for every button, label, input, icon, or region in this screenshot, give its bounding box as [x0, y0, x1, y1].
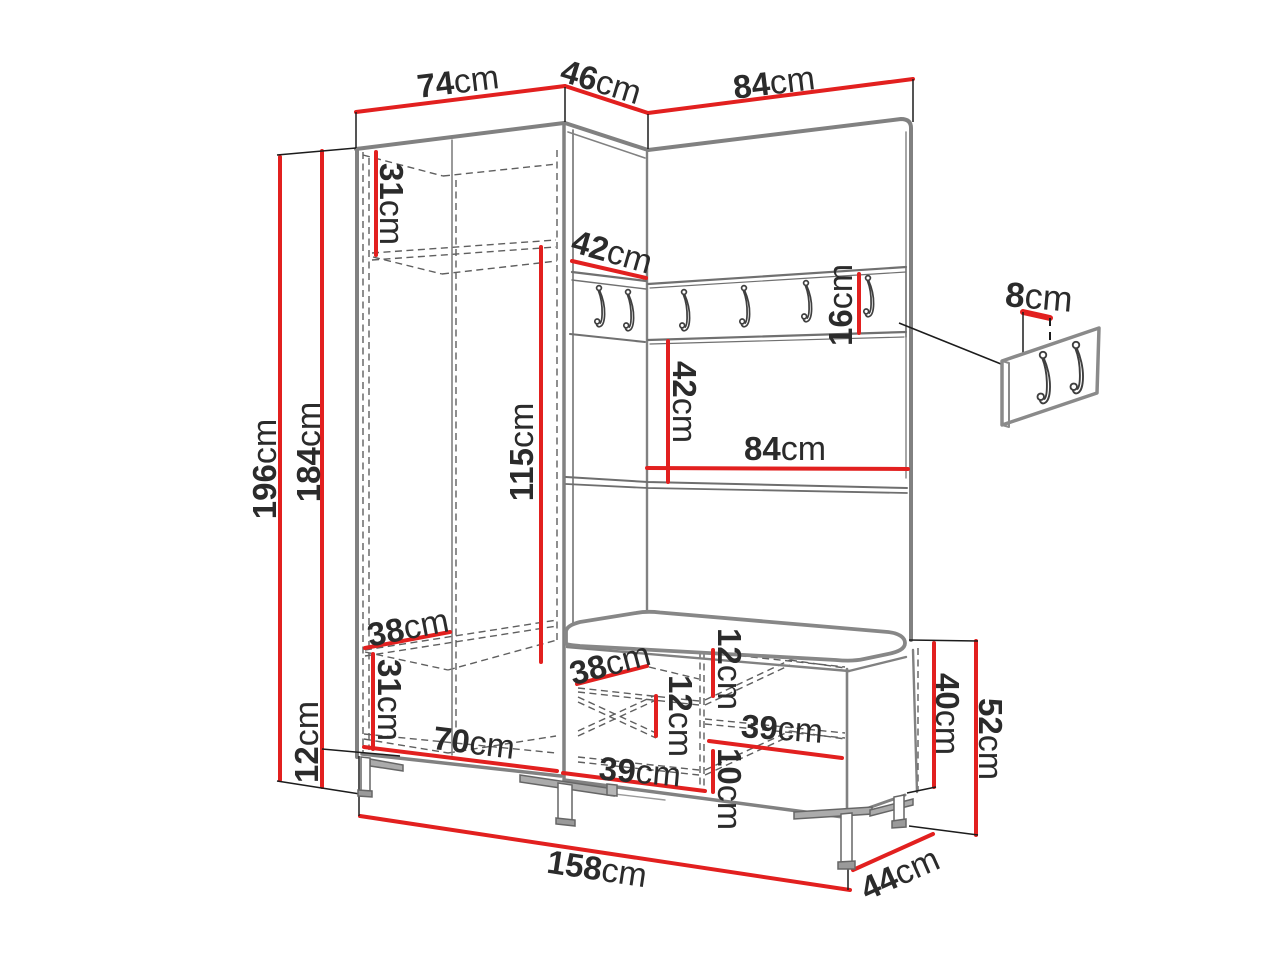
svg-text:40cm: 40cm	[928, 673, 966, 755]
svg-text:52cm: 52cm	[971, 698, 1009, 780]
svg-text:184cm: 184cm	[290, 402, 328, 502]
svg-text:12cm: 12cm	[661, 675, 699, 757]
svg-text:12cm: 12cm	[288, 701, 326, 783]
svg-text:10cm: 10cm	[710, 748, 748, 830]
svg-text:196cm: 196cm	[246, 419, 284, 519]
svg-text:84cm: 84cm	[744, 430, 826, 468]
svg-text:31cm: 31cm	[372, 163, 410, 245]
svg-text:39cm: 39cm	[740, 707, 824, 751]
svg-text:115cm: 115cm	[503, 403, 541, 502]
svg-text:31cm: 31cm	[370, 659, 408, 741]
svg-text:42cm: 42cm	[665, 361, 703, 443]
svg-text:16cm: 16cm	[822, 264, 860, 346]
svg-text:8cm: 8cm	[1004, 273, 1075, 320]
svg-text:12cm: 12cm	[710, 628, 748, 710]
